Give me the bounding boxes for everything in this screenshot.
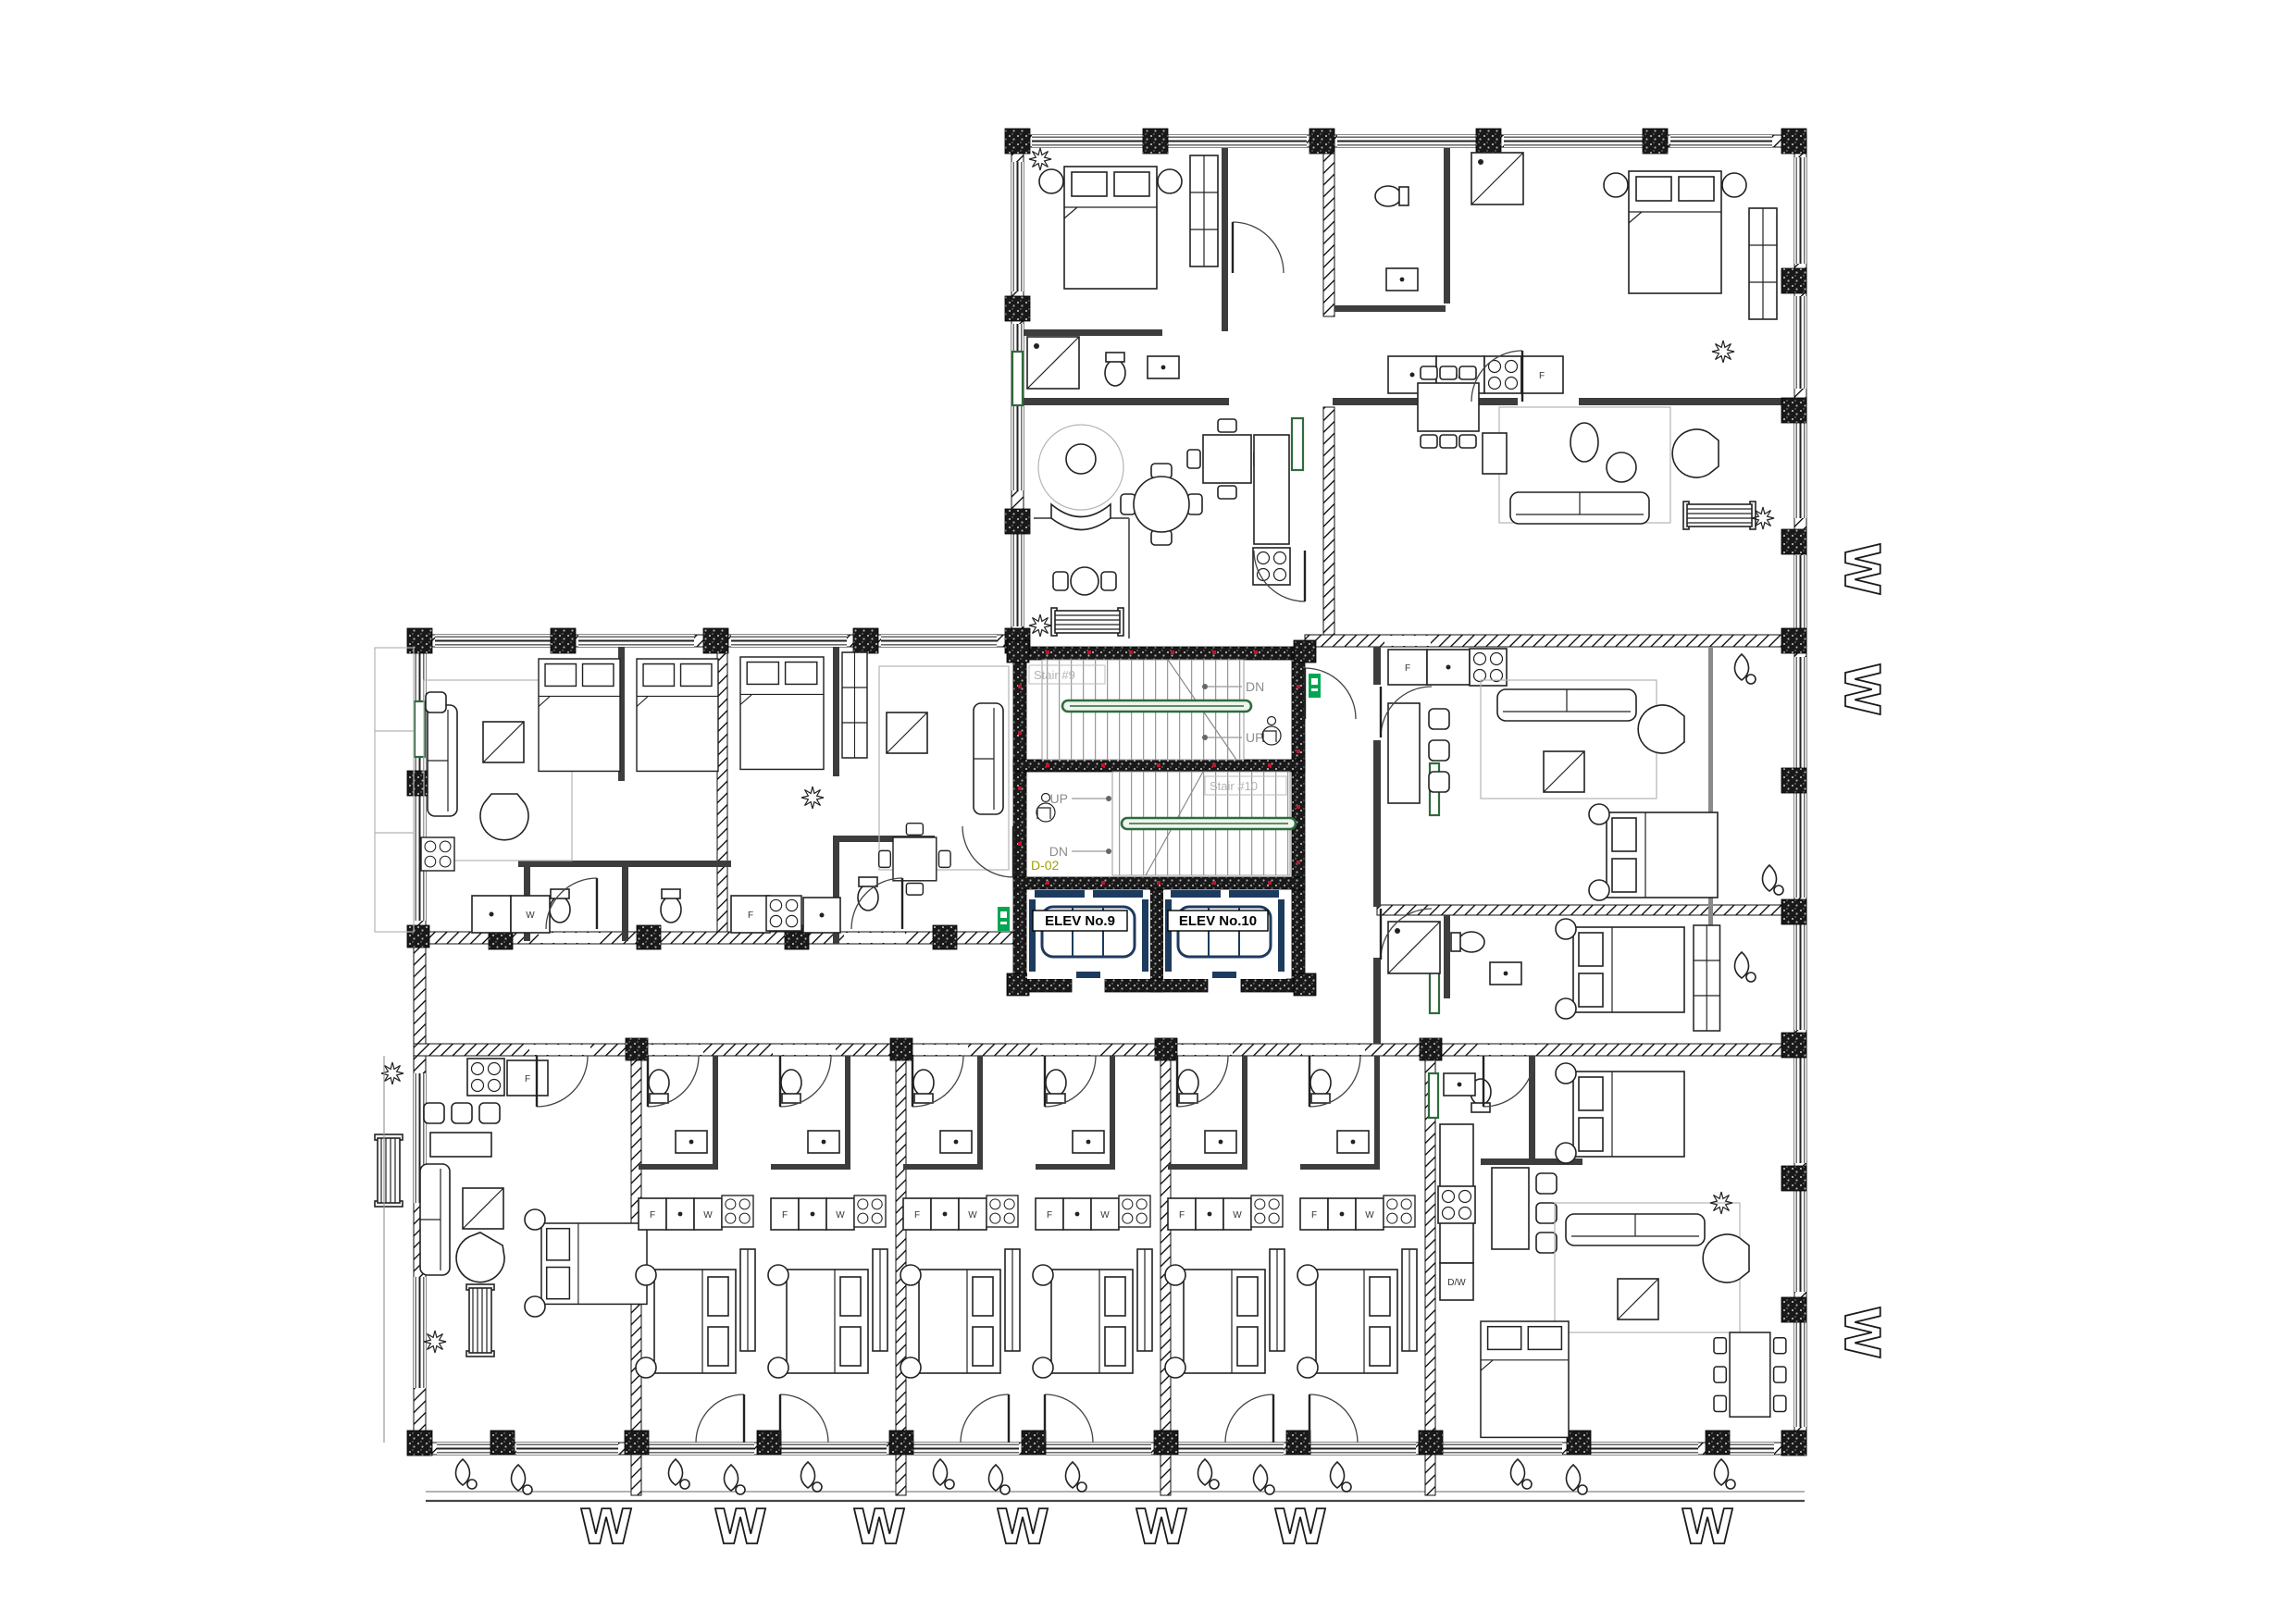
- shower-icon: [1471, 153, 1523, 204]
- tv-table-icon: [1544, 751, 1584, 792]
- floor-plan-canvas: Stair #9 DN UP Stair #10 UP DN D-02 ELEV…: [0, 0, 2296, 1623]
- stool-icon: [1536, 1233, 1557, 1253]
- svg-text:W: W: [703, 1210, 713, 1220]
- stool-icon: [452, 1103, 472, 1123]
- stool-icon: [1536, 1203, 1557, 1223]
- studio-unit: F W: [1165, 1070, 1285, 1378]
- dining-table-icon: [879, 824, 950, 895]
- elevator-10: ELEV No.10: [1163, 890, 1286, 979]
- armchair-icon: [480, 794, 528, 840]
- floor-plan-drawing: Stair #9 DN UP Stair #10 UP DN D-02 ELEV…: [0, 0, 2296, 1623]
- plant-icon: [801, 787, 824, 809]
- toilet-icon: [1105, 353, 1125, 386]
- sofa-icon: [428, 705, 457, 816]
- bed-icon: [541, 1223, 647, 1304]
- sofa-icon: [974, 703, 1003, 814]
- stool-icon: [426, 692, 446, 712]
- plant-icon: [424, 1331, 446, 1353]
- bed-icon: [1607, 812, 1718, 898]
- unit-corner-apartment: D/W: [1438, 1063, 1786, 1437]
- unit-upper-row1-left: [1027, 148, 1218, 389]
- door-tag-d02: D-02: [1031, 858, 1060, 873]
- plant-icon: [1734, 952, 1756, 982]
- sofa-icon: [1566, 1214, 1705, 1245]
- sink-icon: [1490, 962, 1521, 985]
- shower-icon: [1388, 922, 1440, 973]
- bed-icon: [1573, 927, 1684, 1012]
- svg-text:F: F: [914, 1210, 920, 1220]
- exit-sign-icon: [998, 907, 1010, 931]
- toilet-icon: [858, 877, 878, 911]
- balcony-table-icon: [1053, 567, 1116, 595]
- window-tag: W: [1833, 542, 1889, 595]
- window-tag: W: [1135, 1500, 1187, 1555]
- unit-east-row-b: [1388, 919, 1756, 1031]
- stove-icon: [467, 1059, 504, 1096]
- bench-icon: [375, 1134, 403, 1207]
- bed-icon: [1064, 167, 1157, 289]
- stool-icon: [1429, 709, 1449, 729]
- bench-icon: [1051, 608, 1123, 636]
- fridge-label: F: [525, 1074, 530, 1084]
- window-tag: W: [579, 1500, 632, 1555]
- fridge-label: F: [748, 911, 753, 921]
- plant-icon: [1029, 614, 1051, 637]
- unit-west-2: [740, 652, 1009, 933]
- closet-icon: [1749, 208, 1777, 319]
- armchair-icon: [448, 1227, 513, 1291]
- bed-icon: [539, 659, 620, 771]
- sink-icon: [1444, 1073, 1475, 1096]
- fridge-label: F: [1539, 371, 1545, 381]
- stool-icon: [1429, 772, 1449, 792]
- studio-unit: F W: [1297, 1070, 1417, 1378]
- bed-icon: [637, 659, 718, 771]
- dining-table-icon: [1714, 1332, 1786, 1417]
- stool-icon: [1536, 1173, 1557, 1194]
- dishwasher-label: D/W: [1447, 1278, 1466, 1288]
- tv-table-icon: [887, 712, 927, 753]
- unit-east-row-a: F: [1388, 649, 1783, 900]
- stair-10-dn-label: DN: [1049, 844, 1068, 859]
- closet-icon: [1694, 925, 1720, 1031]
- dining-table-icon: [1418, 366, 1479, 448]
- studio-unit: F W: [900, 1070, 1020, 1378]
- studio-unit: F W: [1033, 1070, 1152, 1378]
- bed-icon: [1573, 1072, 1684, 1157]
- unit-bottom-corner: F: [420, 1059, 647, 1357]
- svg-text:F: F: [1047, 1210, 1052, 1220]
- round-table-icon: [1121, 464, 1202, 545]
- svg-text:F: F: [1311, 1210, 1317, 1220]
- closet-icon: [842, 652, 867, 758]
- stair-10: Stair #10 UP DN D-02: [1031, 772, 1296, 875]
- svg-text:W: W: [968, 1210, 977, 1220]
- sink-icon: [1148, 356, 1179, 378]
- exit-sign-icon: [1309, 674, 1321, 698]
- elevator-9-label: ELEV No.9: [1045, 913, 1115, 929]
- washer-label: W: [526, 911, 535, 921]
- wheelchair-refuge-icon: [1262, 717, 1281, 746]
- svg-text:F: F: [1179, 1210, 1185, 1220]
- tv-table-icon: [1618, 1279, 1658, 1319]
- toilet-icon: [661, 889, 681, 923]
- stove-icon: [766, 896, 801, 931]
- stair-9-dn-label: DN: [1246, 679, 1264, 694]
- armchair-icon: [1703, 1234, 1749, 1282]
- window-tag: W: [852, 1500, 905, 1555]
- stair-9: Stair #9 DN UP: [1029, 660, 1281, 760]
- tv-table-icon: [483, 722, 524, 762]
- bed-icon: [1481, 1321, 1569, 1437]
- plant-icon: [1029, 148, 1051, 170]
- svg-text:W: W: [1100, 1210, 1110, 1220]
- sofa-icon: [1497, 689, 1636, 721]
- sink-icon: [1386, 268, 1418, 291]
- elevator-10-label: ELEV No.10: [1179, 913, 1257, 929]
- armchair-icon: [1672, 429, 1719, 477]
- tv-table-icon: [463, 1188, 503, 1229]
- window-tag: W: [1273, 1500, 1326, 1555]
- stool-icon: [1429, 740, 1449, 761]
- stair-10-label: Stair #10: [1210, 779, 1258, 793]
- window-tag: W: [1681, 1500, 1733, 1555]
- armchair-icon: [1638, 705, 1684, 753]
- svg-text:F: F: [650, 1210, 655, 1220]
- stove-icon: [1438, 1186, 1475, 1223]
- shower-icon: [1027, 337, 1079, 389]
- plant-icon: [1734, 654, 1756, 684]
- bed-icon: [1629, 171, 1721, 293]
- studio-units: F W F W F W F W F W: [636, 1070, 1417, 1378]
- window-tag: W: [996, 1500, 1049, 1555]
- sofa-icon: [1510, 492, 1649, 524]
- plant-icon: [1762, 865, 1783, 895]
- stove-icon: [1253, 548, 1290, 585]
- svg-text:F: F: [782, 1210, 788, 1220]
- bench-icon: [1683, 502, 1756, 529]
- bench-icon: [466, 1284, 494, 1357]
- studio-unit: F W: [768, 1070, 887, 1378]
- fridge-label: F: [1405, 663, 1410, 674]
- stair-9-label: Stair #9: [1034, 668, 1075, 682]
- unit-upper-row2-left: [1029, 419, 1290, 637]
- studio-unit: F W: [636, 1070, 755, 1378]
- window-tag: W: [1833, 663, 1889, 715]
- svg-text:W: W: [1365, 1210, 1374, 1220]
- plant-icon: [1712, 341, 1734, 363]
- bed-icon: [740, 657, 824, 769]
- toilet-icon: [1375, 186, 1409, 206]
- svg-text:W: W: [836, 1210, 845, 1220]
- stove-icon: [421, 837, 454, 871]
- sofa-icon: [420, 1164, 450, 1275]
- closet-icon: [1190, 155, 1218, 266]
- window-tag: W: [714, 1500, 766, 1555]
- stair-10-up-label: UP: [1050, 791, 1068, 806]
- toilet-icon: [1451, 932, 1484, 952]
- stair-9-up-label: UP: [1246, 730, 1263, 745]
- stool-icon: [424, 1103, 444, 1123]
- window-tag: W: [1833, 1306, 1889, 1358]
- stool-icon: [479, 1103, 500, 1123]
- unit-upper-row2-right: [1418, 341, 1774, 529]
- svg-text:W: W: [1233, 1210, 1242, 1220]
- elevator-9: ELEV No.9: [1027, 890, 1150, 979]
